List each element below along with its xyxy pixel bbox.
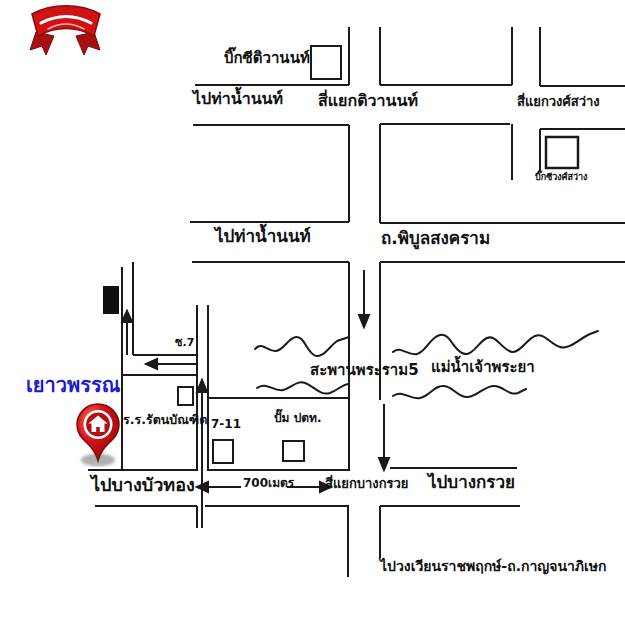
- label-chao-phraya-river: แม่น้ำเจ้าพระยา: [431, 359, 535, 376]
- label-to-tha-nam-non-mid: ไปท่าน้ำนนท์: [215, 227, 311, 247]
- arrow-up-soi-head: [122, 311, 132, 322]
- arrow-down-bridge-head: [359, 315, 369, 327]
- label-phibun-songkhram-rd: ถ.พิบูลสงคราม: [381, 229, 490, 249]
- ribbon-badge-icon: [28, 2, 104, 60]
- road-row2-topedge: [190, 222, 625, 223]
- label-to-bang-bua-thong: ไปบางบัวทอง: [91, 475, 195, 496]
- label-to-tha-nam-non-top: ไปท่าน้ำนนท์: [193, 90, 283, 108]
- river-waves: [255, 331, 598, 398]
- destination-pin: [75, 403, 121, 467]
- river-lower-right: [393, 386, 526, 398]
- label-destination-name: เยาวพรรณ: [26, 374, 120, 397]
- shops-block: [208, 398, 349, 470]
- big-c-tiwanon-box: [311, 46, 341, 79]
- seven-eleven-box: [213, 440, 233, 463]
- soi-7-lines: [122, 262, 208, 470]
- label-to-bang-kruai: ไปบางกรวย: [428, 473, 515, 493]
- destination-building: [103, 286, 119, 314]
- ribbon-badge-logo: [28, 2, 104, 60]
- river-upper-left: [255, 337, 349, 356]
- road-wongsawang-top: [512, 27, 540, 86]
- arrow-up-street-head: [197, 380, 207, 392]
- destination-pin-icon: [75, 403, 121, 467]
- label-distance-700m: 700เมตร: [243, 477, 294, 491]
- road-tiwanon-top: [349, 27, 380, 85]
- arrow-left-head: [146, 359, 157, 369]
- label-soi-7: ซ.7: [175, 337, 194, 350]
- distance-arrow-left-head: [197, 482, 208, 492]
- label-big-c-wongsawang: บิ๊กซีวงศ์สว่าง: [535, 172, 587, 182]
- road-row1-bottomedge: [193, 124, 625, 129]
- label-rama5-bridge: สะพานพระราม5: [310, 362, 419, 379]
- label-ptt-station: ปั๊ม ปตท.: [274, 412, 322, 426]
- label-tiwanon-intersection: สี่แยกติวานนท์: [318, 92, 418, 110]
- school-inner-building: [178, 387, 193, 405]
- road-tiwanon-tail: [348, 506, 380, 577]
- big-c-wongsawang-box: [546, 137, 578, 168]
- map-canvas: บิ๊กซีติวานนท์ ไปท่าน้ำนนท์ สี่แยกติวานน…: [0, 0, 625, 625]
- label-big-c-tiwanon: บิ๊กซีติวานนท์: [224, 50, 310, 67]
- label-seven-eleven: 7-11: [211, 418, 241, 432]
- label-wongsawang-intersection: สี่แยกวงศ์สว่าง: [517, 95, 600, 110]
- road-tiwanon-mid: [349, 124, 380, 223]
- arrow-down-main-head: [379, 458, 389, 470]
- label-to-ratchaphruek: ไปวงเวียนราชพฤกษ์-ถ.กาญจนาภิเษก: [380, 558, 607, 574]
- road-row1-topedge: [195, 85, 625, 86]
- label-bang-kruai-intersection: สี่แยกบางกรวย: [325, 477, 408, 492]
- river-upper-right: [393, 331, 598, 354]
- label-school: ร.ร.รัตนบัณฑิต: [123, 413, 207, 427]
- river-lower-left: [257, 382, 349, 393]
- ptt-box: [283, 441, 304, 461]
